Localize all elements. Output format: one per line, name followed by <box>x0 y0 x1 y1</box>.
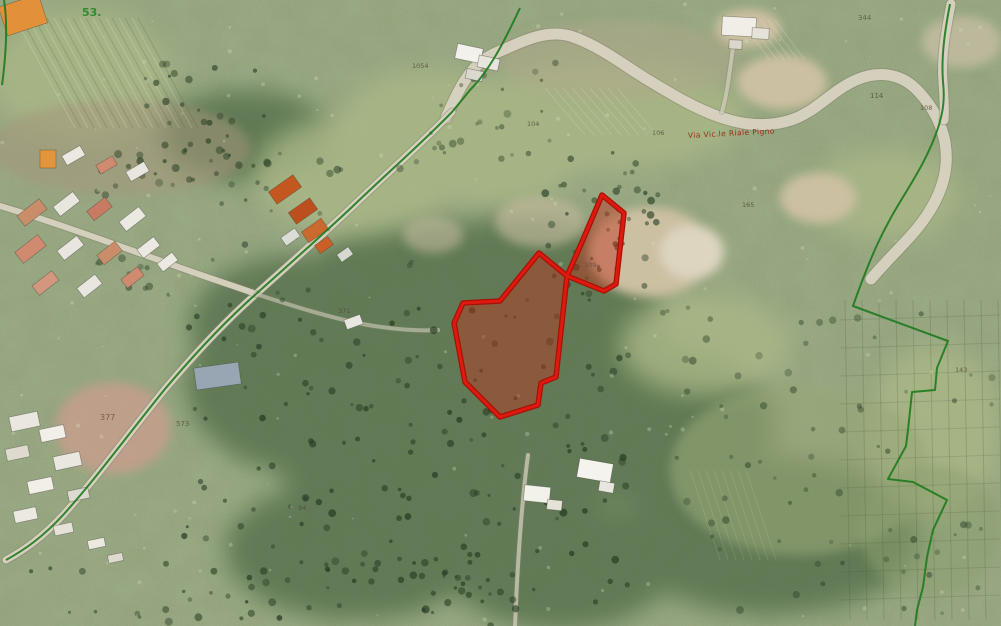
parcel-number-label: 143 <box>955 366 967 374</box>
parcel-number-label: 94 <box>298 504 306 512</box>
building <box>598 481 615 493</box>
aerial-map: 53. Via Vic.le Riale Pigno 3775733441141… <box>0 0 1001 626</box>
aerial-map-viewport[interactable]: 53. Via Vic.le Riale Pigno 3775733441141… <box>0 0 1001 626</box>
building <box>547 499 563 511</box>
parcel-number-label: 106 <box>652 129 664 137</box>
building <box>729 40 742 50</box>
parcel-number-label: 371 <box>338 307 350 315</box>
parcel-number-label: 377 <box>100 413 115 422</box>
parcel-number-label: 165 <box>742 201 754 209</box>
parcel-number-label: 109 <box>584 261 596 269</box>
building <box>523 485 551 504</box>
building <box>40 150 56 168</box>
parcel-number-label: 108 <box>920 104 932 112</box>
parcel-number-label: 104 <box>527 120 539 128</box>
parcel-number-label: 344 <box>858 14 872 22</box>
parcel-number-label: 114 <box>870 92 884 100</box>
parcel-number-label: 573 <box>176 420 189 428</box>
parcel-number-label: 1054 <box>412 62 429 70</box>
building <box>722 16 757 37</box>
corner-parcel-label: 53. <box>82 6 102 19</box>
building <box>752 28 770 40</box>
